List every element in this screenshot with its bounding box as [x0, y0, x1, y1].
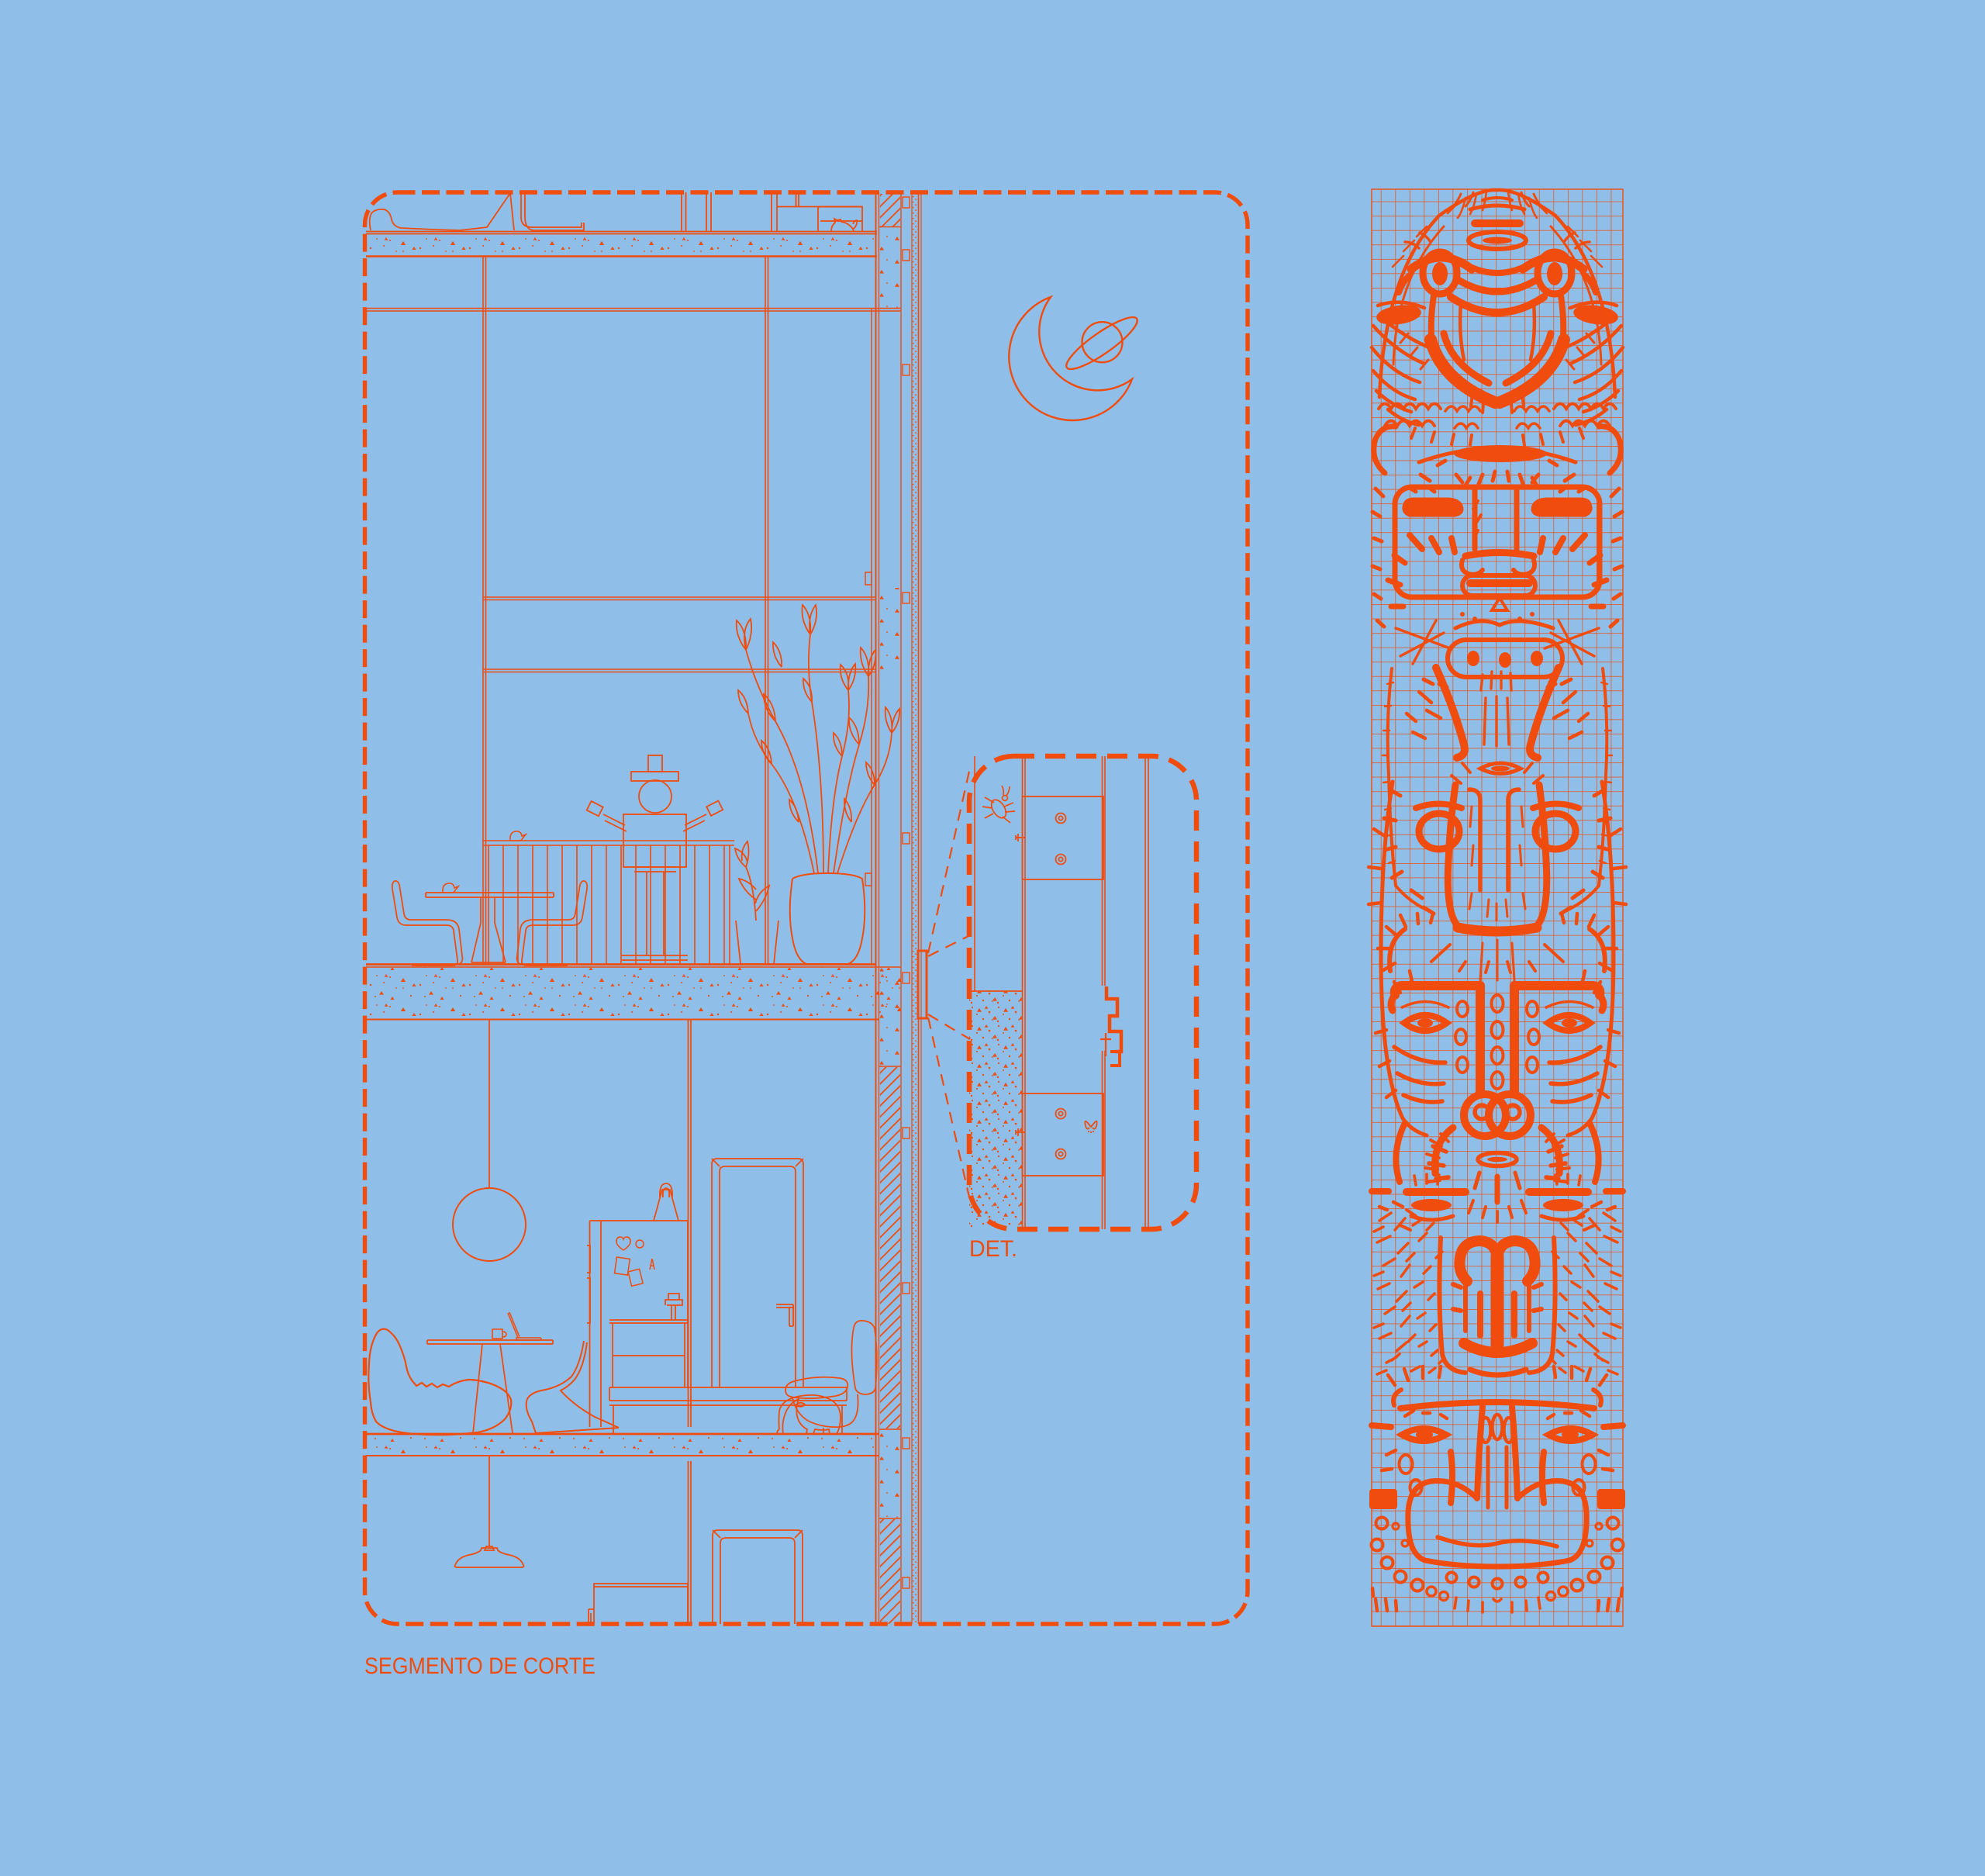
svg-text:DET.: DET. [969, 1236, 1017, 1262]
svg-text:SEGMENTO DE CORTE: SEGMENTO DE CORTE [364, 1653, 595, 1679]
